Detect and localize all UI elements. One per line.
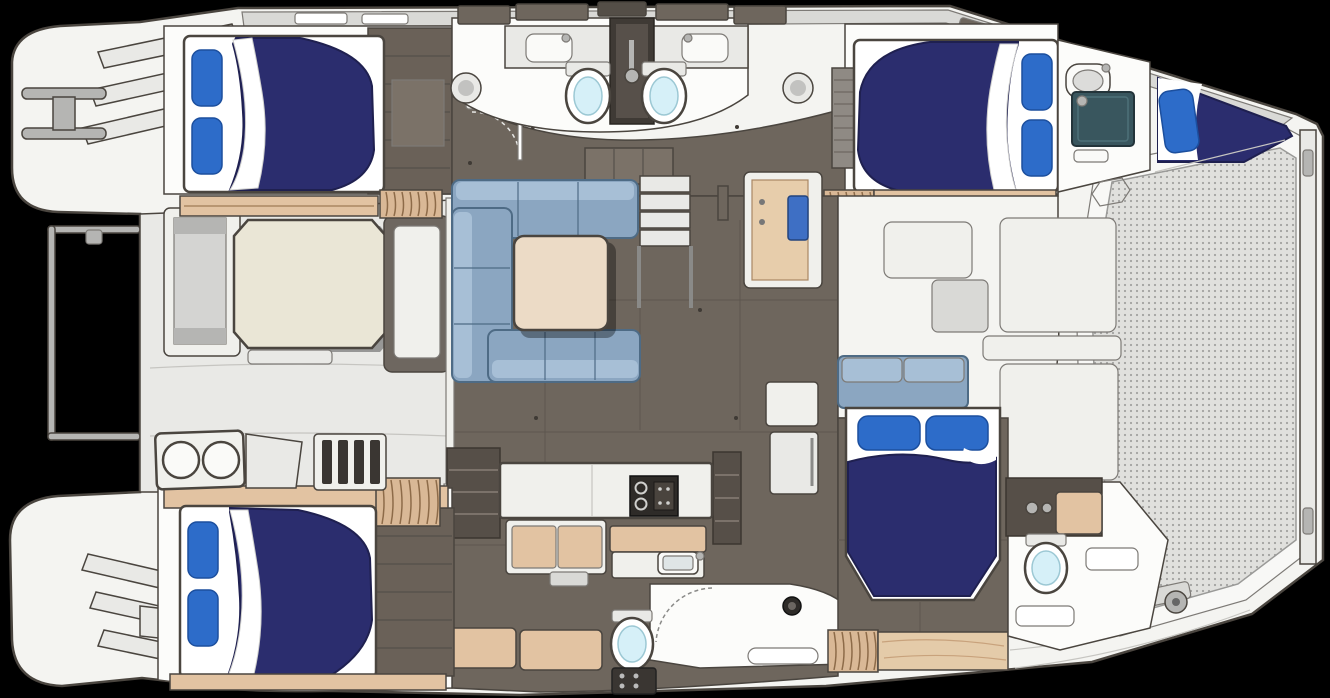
grate-dot: [666, 501, 670, 505]
bench-cushion: [512, 526, 556, 568]
sink-basin: [663, 556, 693, 570]
shower-stall: [1072, 92, 1134, 146]
faucet: [562, 34, 570, 42]
knob: [759, 219, 765, 225]
porthole-glass: [458, 80, 474, 96]
crossbeam-fitting: [1303, 508, 1313, 534]
starboard-aft-cabin: [158, 478, 454, 692]
port-forward-bathroom: [1058, 40, 1150, 192]
salon: [444, 172, 846, 694]
utility-box: [612, 668, 656, 694]
table-top: [514, 236, 608, 330]
sofa-back-cushion: [842, 358, 902, 382]
catamaran-floorplan: [0, 0, 1330, 698]
screw: [734, 416, 738, 420]
shelf: [1086, 548, 1138, 570]
grate-dot: [658, 501, 662, 505]
pillow: [188, 590, 218, 646]
double-berth: [180, 506, 376, 678]
fridge-top: [766, 382, 818, 426]
sofa-bottom-backrest: [492, 360, 638, 378]
step: [640, 212, 690, 228]
pillow: [926, 416, 988, 450]
screw: [698, 308, 702, 312]
grill-side-table: [246, 434, 302, 488]
salon-table: [514, 236, 616, 338]
shower-rail: [629, 40, 634, 70]
cleat-post: [53, 97, 75, 130]
grill-burner: [203, 442, 239, 478]
bench-cushion: [446, 628, 516, 668]
faucet: [684, 34, 692, 42]
wall-stub: [718, 186, 728, 220]
stove: [630, 476, 678, 516]
box-dot: [620, 684, 625, 689]
pillow: [858, 416, 920, 450]
toilet: [1025, 534, 1067, 593]
vanity-counter: [1056, 492, 1102, 534]
rail-fitting: [86, 230, 102, 244]
galley-counter: [500, 463, 712, 518]
locker-lid: [1000, 218, 1116, 332]
sofa-back-cushion: [904, 358, 964, 382]
cabinet: [458, 6, 510, 24]
cockpit-grill: [155, 430, 302, 489]
louver-bar: [338, 440, 348, 484]
grate-dot: [666, 487, 670, 491]
deck-hatch: [295, 13, 347, 24]
pillow: [192, 50, 222, 106]
seat-block: [932, 280, 988, 332]
duvet: [848, 454, 996, 596]
seat-block: [884, 222, 972, 278]
rail-bar: [48, 226, 55, 440]
folding-door-left: [380, 190, 442, 218]
oven-grate: [654, 482, 674, 510]
step: [640, 230, 690, 246]
cabinet: [734, 6, 786, 24]
windlass-axle: [1172, 598, 1180, 606]
table-top: [234, 220, 386, 348]
screw: [735, 125, 739, 129]
crossbeam-fitting: [1303, 150, 1313, 176]
porthole-left: [451, 73, 481, 103]
shelf-strip: [170, 674, 446, 690]
screw: [468, 161, 472, 165]
cabinet: [598, 2, 646, 16]
toilet-right: [642, 62, 686, 123]
bath-bench: [1016, 606, 1074, 626]
nav-cabinet: [744, 172, 822, 288]
cockpit-lounge-right: [384, 216, 450, 372]
cockpit-bench-left: [164, 208, 240, 356]
rail-bar: [48, 433, 140, 440]
fixture: [1042, 503, 1052, 513]
shelf-unit-left: [447, 448, 500, 538]
louver-bar: [322, 440, 332, 484]
port-aft-cabin: [164, 26, 452, 194]
lounge-cushion: [394, 226, 440, 358]
speaker-cone: [788, 602, 796, 610]
bench-armrest: [174, 218, 226, 234]
floorplan-svg: [0, 0, 1330, 698]
shower-head: [625, 69, 639, 83]
forward-crossbeam: [1300, 130, 1316, 564]
locker-lid: [1000, 364, 1118, 480]
vent-louver: [314, 434, 386, 490]
shower-head: [1077, 96, 1087, 106]
box-dot: [634, 684, 639, 689]
bench-step: [550, 572, 588, 586]
bench-cushion: [558, 526, 602, 568]
toilet-seat: [650, 77, 678, 115]
cabinet: [516, 4, 588, 20]
double-berth: [854, 40, 1058, 192]
step: [640, 194, 690, 210]
forward-sofa: [838, 356, 968, 408]
toilet: [611, 610, 653, 670]
double-berth: [846, 408, 1000, 600]
aft-benches: [446, 628, 602, 670]
box-dot: [620, 674, 625, 679]
sofa-left-backrest: [454, 212, 472, 378]
pillow: [192, 118, 222, 174]
pillow: [1022, 120, 1052, 176]
knob: [759, 199, 765, 205]
grate-dot: [658, 487, 662, 491]
bath-bench: [748, 648, 818, 664]
wood-sole: [878, 632, 1008, 670]
toilet-left: [566, 62, 610, 123]
louver-bar: [370, 440, 380, 484]
starboard-forward-cabin: [828, 408, 1008, 672]
porthole-right: [783, 73, 813, 103]
cockpit-table: [234, 220, 394, 352]
louver-bar: [354, 440, 364, 484]
counter-top: [500, 463, 712, 518]
locker-bar: [983, 336, 1121, 360]
double-berth: [184, 36, 384, 192]
deck-hatch: [362, 14, 408, 24]
shelf: [1074, 150, 1108, 162]
bench-cushion: [520, 630, 602, 670]
box: [612, 668, 656, 694]
cockpit-sill: [248, 350, 332, 364]
toilet-seat: [574, 77, 602, 115]
tv-screen: [788, 196, 808, 240]
box-dot: [634, 674, 639, 679]
step-rail: [637, 246, 641, 308]
port-forward-cabin: [832, 24, 1058, 194]
porthole-glass: [790, 80, 806, 96]
step-rail: [689, 246, 693, 308]
island-top: [610, 526, 706, 552]
bench-cushion: [174, 218, 226, 344]
wood-floor: [878, 632, 1008, 670]
faucet: [1102, 64, 1110, 72]
sofa-top-backrest: [456, 182, 634, 200]
fixture: [1026, 502, 1038, 514]
basin-bowl: [1073, 70, 1103, 92]
toilet-seat: [1032, 551, 1060, 585]
galley-island: [610, 526, 706, 578]
crossbeam-bar: [1300, 130, 1316, 564]
hull-steps: [828, 630, 878, 672]
grill-burner: [163, 442, 199, 478]
pillow: [1022, 54, 1052, 110]
bench-armrest: [174, 328, 226, 344]
toilet-seat: [618, 626, 646, 662]
fridge-column: [766, 382, 818, 494]
step: [640, 176, 690, 192]
cabinet: [656, 4, 728, 20]
wardrobe: [392, 80, 444, 146]
faucet: [696, 552, 704, 560]
pillow: [188, 522, 218, 578]
screw: [534, 416, 538, 420]
